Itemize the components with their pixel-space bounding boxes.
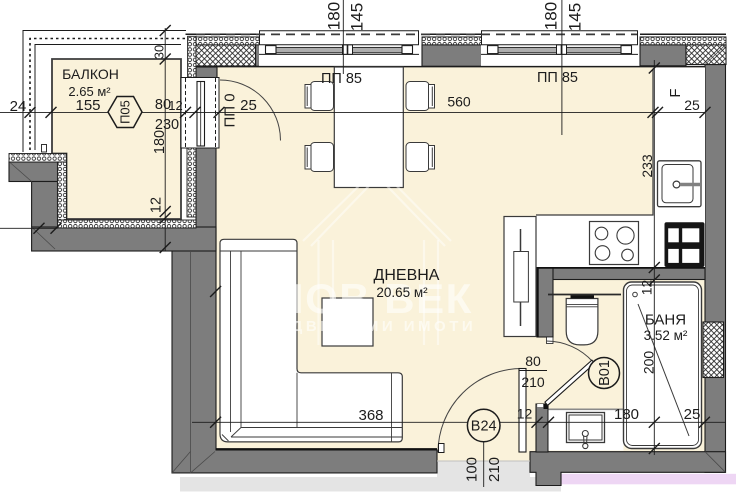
svg-text:ПП 0: ПП 0 — [222, 93, 239, 127]
svg-text:368: 368 — [358, 407, 383, 424]
svg-text:30: 30 — [152, 45, 167, 59]
svg-text:233: 233 — [639, 154, 655, 178]
svg-text:БАЛКОН: БАЛКОН — [62, 66, 119, 82]
svg-text:145: 145 — [348, 3, 367, 31]
svg-text:БАНЯ: БАНЯ — [645, 312, 686, 329]
svg-text:180: 180 — [325, 2, 344, 30]
svg-text:ПП 85: ПП 85 — [321, 71, 362, 87]
svg-text:25: 25 — [240, 97, 257, 114]
svg-text:180: 180 — [152, 130, 168, 154]
svg-text:НЕДВИЖИМИ ИМОТИ: НЕДВИЖИМИ ИМОТИ — [264, 318, 476, 335]
svg-text:F: F — [667, 88, 684, 97]
svg-text:12: 12 — [639, 280, 655, 296]
svg-text:25: 25 — [684, 97, 700, 113]
svg-text:210: 210 — [486, 457, 503, 482]
svg-text:80: 80 — [525, 353, 541, 369]
svg-text:3.52 м²: 3.52 м² — [644, 328, 688, 343]
svg-text:25: 25 — [684, 406, 701, 423]
svg-text:ДНЕВНА: ДНЕВНА — [374, 267, 440, 284]
svg-text:П05: П05 — [118, 100, 133, 124]
svg-text:12: 12 — [168, 98, 182, 113]
svg-text:560: 560 — [447, 94, 471, 110]
svg-text:180: 180 — [542, 2, 561, 30]
svg-text:B24: B24 — [471, 419, 497, 435]
svg-text:ПП 85: ПП 85 — [537, 70, 578, 86]
svg-text:12: 12 — [149, 197, 165, 213]
svg-text:155: 155 — [75, 97, 100, 114]
svg-text:100: 100 — [464, 457, 481, 482]
svg-text:20.65 м²: 20.65 м² — [376, 285, 428, 300]
svg-text:145: 145 — [566, 3, 585, 31]
svg-text:210: 210 — [521, 374, 545, 390]
svg-text:12: 12 — [517, 406, 533, 422]
svg-text:180: 180 — [614, 406, 639, 423]
svg-text:200: 200 — [641, 351, 657, 375]
svg-text:24: 24 — [10, 98, 27, 115]
svg-text:B01: B01 — [597, 360, 613, 386]
